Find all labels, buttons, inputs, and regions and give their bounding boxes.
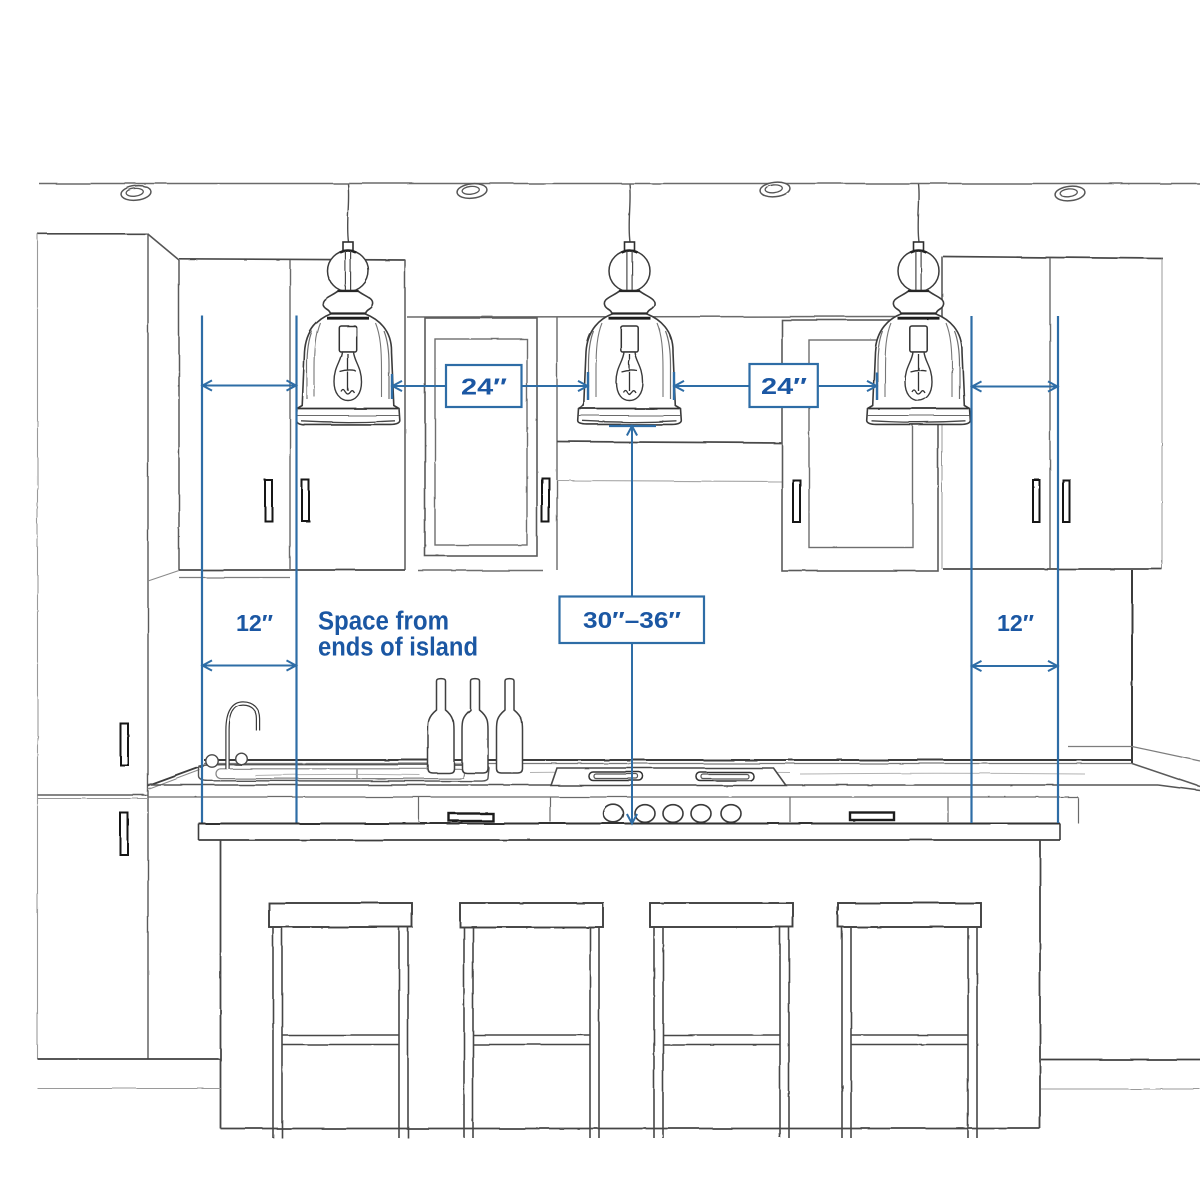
svg-text:30″–36″: 30″–36″ <box>583 607 681 633</box>
svg-text:12″: 12″ <box>236 610 273 636</box>
svg-text:Space from: Space from <box>318 608 449 636</box>
svg-text:24″: 24″ <box>461 374 507 400</box>
svg-text:ends of island: ends of island <box>318 634 478 662</box>
svg-text:24″: 24″ <box>761 373 807 399</box>
svg-text:12″: 12″ <box>997 610 1034 636</box>
